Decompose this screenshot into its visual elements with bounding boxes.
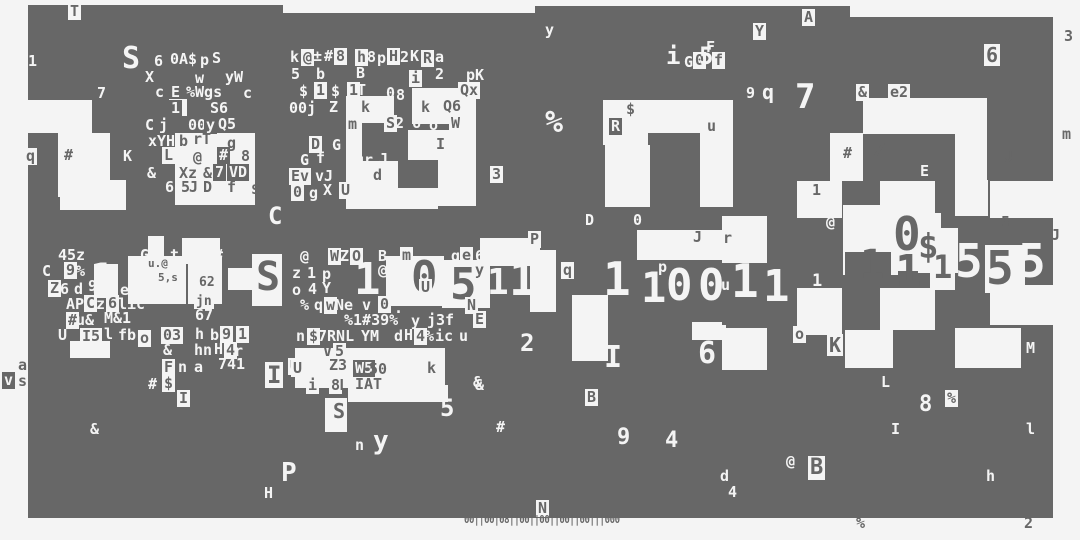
noise-glyph: q [561,262,574,279]
noise-glyph: 00j [289,101,316,116]
noise-glyph: k [290,50,299,65]
noise-glyph: 8 [379,182,388,197]
noise-glyph: c [155,85,164,100]
noise-glyph: t [231,274,242,292]
noise-glyph: t [170,248,179,263]
noise-glyph: o [429,118,438,133]
noise-glyph: C [42,264,51,279]
noise-glyph: O [350,248,363,265]
noise-glyph: a [18,358,27,373]
white-block [722,328,767,370]
noise-glyph: 4 [308,282,317,297]
noise-glyph: Y [322,281,331,296]
noise-glyph: 741 [218,357,245,372]
noise-glyph: 7 [97,86,106,101]
noise-glyph: # [843,146,852,161]
noise-glyph: P [528,231,541,248]
noise-glyph: K [827,334,843,356]
noise-glyph: U [1003,150,1012,165]
noise-glyph: d [394,329,403,344]
noise-glyph: a [435,50,444,65]
noise-glyph: Z [340,249,349,264]
noise-glyph: u& [76,313,94,328]
noise-glyph: B [356,66,365,81]
noise-glyph: $ [626,102,635,117]
noise-glyph: 6 [154,54,163,69]
noise-glyph: ... [417,291,444,306]
noise-glyph: n [178,360,187,375]
noise-glyph: m [346,116,359,133]
noise-glyph: q [24,148,37,165]
noise-glyph: u [707,119,716,134]
noise-glyph: k [425,360,438,377]
big-digit: 1 [933,251,952,283]
noise-glyph: X [818,308,827,323]
noise-glyph: 62 [199,276,215,289]
barcode-row: 00||00|08||00||00||00||00|||000 [464,514,620,525]
noise-glyph: 2 [400,50,409,65]
noise-glyph: YM [361,329,379,344]
noise-glyph: E [920,164,929,179]
white-block [605,145,650,207]
noise-glyph: m [400,247,413,264]
noise-glyph: 0 [386,86,395,101]
noise-glyph: Q6 [441,98,463,115]
noise-glyph: l [104,327,113,342]
noise-glyph: B [808,456,825,480]
noise-glyph: 5 [440,396,454,420]
noise-glyph: 9 [746,86,755,101]
noise-glyph: 2 [520,331,534,355]
noise-glyph: 7 [213,164,226,181]
noise-glyph: 9t [88,279,106,294]
noise-glyph: s [18,374,27,389]
white-block [700,145,733,207]
noise-glyph: q [762,82,774,102]
noise-glyph: J [189,180,198,195]
noise-glyph: 5,s [158,272,178,283]
noise-glyph: z [292,266,301,281]
noise-glyph: ic [435,329,453,344]
noise-glyph: L [162,147,175,164]
noise-glyph: S6 [210,101,228,116]
noise-glyph: % [545,108,563,138]
noise-glyph: 9qr [346,153,373,168]
noise-glyph: L [881,375,890,390]
big-digit: 1 [763,265,790,309]
page-background: { "scene": { "description": "glitch nois… [0,0,1080,540]
noise-glyph: @ [300,249,309,264]
noise-glyph: D [585,213,594,228]
noise-glyph: $ [162,375,175,392]
noise-glyph: A [802,9,815,26]
noise-glyph: 2 [1024,516,1033,531]
big-digit: 0 [666,264,693,308]
noise-glyph: e [460,247,473,264]
noise-glyph: e2 [888,84,910,101]
noise-glyph: ± [313,49,322,64]
noise-glyph: & [90,422,99,437]
white-block [637,230,732,260]
noise-glyph: a [194,360,203,375]
noise-glyph: J [693,230,702,245]
noise-glyph: X [323,183,332,198]
noise-glyph: X [145,70,154,85]
white-block [990,181,1053,218]
dark-block [398,160,438,188]
noise-glyph: hn [194,343,212,358]
noise-glyph: 7 [795,80,815,114]
noise-glyph: 2 [435,67,444,82]
noise-glyph: 67 [195,308,213,323]
noise-glyph: C [145,118,154,133]
noise-glyph: S [122,44,140,74]
white-block [845,330,893,368]
noise-glyph: r [721,230,734,247]
big-digit: 5 [986,245,1014,291]
noise-glyph: 8 [241,149,250,164]
noise-glyph: rT [193,132,211,147]
big-digit: 5 [1018,238,1046,284]
noise-glyph: q [451,249,460,264]
noise-glyph: % [425,329,434,344]
noise-glyph: & [163,343,172,358]
noise-glyph: 8 [396,88,405,103]
noise-glyph: b [179,134,188,149]
noise-glyph: E [473,311,486,328]
noise-glyph: Z [872,142,885,164]
noise-glyph: 8 [334,48,347,65]
noise-glyph: h [986,469,995,484]
noise-glyph: 6 [412,116,421,131]
noise-glyph: S [212,51,221,66]
noise-glyph: f [227,180,236,195]
big-digit: S [254,256,282,298]
noise-glyph: I [434,136,447,153]
noise-glyph: v [2,372,15,389]
noise-glyph: & [147,166,156,181]
noise-glyph: 5 [1001,215,1010,230]
noise-glyph: $ [331,84,340,99]
noise-glyph: U3 [184,248,202,263]
noise-glyph: # [64,148,73,163]
noise-glyph: 8 [919,394,932,416]
noise-glyph: & [475,378,484,393]
noise-glyph: @ [786,454,795,469]
noise-glyph: I [604,343,622,373]
noise-glyph: %1#39% [344,313,398,328]
noise-glyph: # [496,420,505,435]
noise-glyph: 0 [291,184,304,201]
noise-glyph: 0 [633,213,642,228]
noise-glyph: K [123,149,132,164]
noise-glyph: U [58,328,67,343]
noise-glyph: K [410,49,419,64]
noise-glyph: $ [251,182,260,197]
noise-glyph: G [684,55,693,70]
noise-glyph: % [300,298,309,313]
noise-glyph: 6 [165,180,174,195]
noise-glyph: I [265,362,283,388]
noise-glyph: 2 [395,116,404,131]
noise-glyph: T [68,3,81,20]
white-block [346,187,438,209]
noise-glyph: I [177,390,190,407]
noise-glyph: # [324,49,333,64]
noise-glyph: Qx [458,82,480,99]
noise-glyph: 0 [911,310,920,325]
noise-glyph: 1 [314,82,327,99]
noise-glyph: I5 [80,328,102,345]
noise-glyph: j3f [427,313,454,328]
noise-glyph: J [379,152,388,167]
noise-glyph: l [1026,422,1035,437]
noise-glyph: @ [193,150,202,165]
noise-glyph: m [1062,127,1071,142]
big-digit: 1 [509,256,537,302]
noise-glyph: M [1026,341,1035,356]
noise-glyph: % [856,516,865,531]
white-block [28,100,92,133]
noise-glyph: # [148,377,157,392]
noise-glyph: o [793,326,806,343]
noise-glyph: P [281,460,297,486]
noise-glyph: IAT [355,377,382,392]
noise-glyph: i [666,44,680,68]
noise-glyph: 5 [430,101,439,116]
noise-glyph: G [300,153,309,168]
noise-glyph: 0A$ [170,52,197,67]
noise-glyph: AP [66,297,84,312]
noise-glyph: yW [225,70,243,85]
white-block [955,180,988,216]
noise-glyph: d [720,469,729,484]
noise-glyph: s [419,136,428,151]
noise-glyph: %Wgs [186,85,222,100]
noise-glyph: 1 [307,266,316,281]
noise-glyph: H [264,486,273,501]
noise-glyph: 4 [728,485,737,500]
noise-glyph: n [296,329,305,344]
noise-glyph: H [387,48,400,65]
noise-glyph: c [243,86,252,101]
noise-glyph: f [316,151,325,166]
noise-glyph: p [198,52,211,69]
noise-glyph: L [339,378,348,393]
noise-glyph: 3 [490,166,503,183]
noise-glyph: 1 [810,182,823,199]
noise-glyph: B [585,389,598,406]
noise-glyph: 2 [363,184,372,199]
big-digit: 5 [955,238,983,284]
noise-glyph: Q5 [216,116,238,133]
noise-glyph: Z3 [329,358,347,373]
noise-glyph: 8 [367,50,376,65]
noise-glyph: @ [826,215,835,230]
noise-glyph: h [195,327,204,342]
noise-glyph: U [291,360,304,377]
noise-glyph: y [545,23,554,38]
noise-glyph: j [473,277,485,297]
noise-glyph: y [373,428,389,454]
noise-glyph: E [171,85,180,100]
noise-glyph: D [203,180,212,195]
noise-glyph: f [712,52,725,69]
noise-glyph: u [459,329,468,344]
noise-glyph: U [339,182,352,199]
noise-glyph: 4 [665,430,678,452]
noise-glyph: 1 [28,54,37,69]
noise-glyph: n [355,438,364,453]
noise-glyph: q [314,298,323,313]
noise-glyph: @ [378,263,387,278]
noise-glyph: R [421,50,434,67]
noise-glyph: 5 [291,67,300,82]
noise-glyph: i [409,70,422,87]
big-digit: 1 [731,258,759,304]
noise-glyph: # [217,147,230,164]
noise-glyph: 1 [812,273,822,290]
noise-glyph: 6 [984,44,1000,66]
noise-glyph: $ [299,84,308,99]
glitch-collage-canvas: 110S110511110011011$1555TyAY3m1q#7avs&%2… [0,0,1080,540]
noise-glyph: % [76,264,85,279]
noise-glyph: u.@ [148,258,168,269]
noise-glyph: R [609,118,622,135]
noise-glyph: p [377,51,386,66]
noise-glyph: 1 [169,100,182,117]
big-digit: 1 [860,245,884,285]
noise-glyph: fb [118,328,136,343]
noise-glyph: 1 [236,326,249,343]
noise-glyph: 6 [698,339,716,369]
noise-glyph: % [945,390,958,407]
noise-glyph: Z [329,100,338,115]
noise-glyph: G [332,138,341,153]
noise-glyph: b [316,67,325,82]
noise-glyph: H [404,328,413,343]
big-digit: 1 [603,256,631,302]
noise-glyph: g [309,186,318,201]
noise-glyph: S [331,400,347,422]
noise-glyph: & [856,84,869,101]
white-block [60,180,126,210]
noise-glyph: o [138,330,151,347]
noise-glyph: # [214,248,223,263]
big-digit: 1 [487,265,509,301]
noise-glyph: i [306,377,319,394]
noise-glyph: 3 [1064,29,1073,44]
noise-glyph: 7 [460,116,469,131]
noise-glyph: C [370,101,379,116]
noise-glyph: 9 [617,427,630,449]
white-block [955,328,1021,368]
dark-block [648,133,700,145]
noise-glyph: I [891,422,900,437]
noise-glyph: u [721,278,730,293]
noise-glyph: J [1051,228,1060,243]
white-block [955,133,987,181]
noise-glyph: Y [753,23,766,40]
noise-glyph: p [658,260,667,275]
noise-glyph: M&1 [104,311,131,326]
noise-glyph: C [268,204,282,228]
white-block [863,98,987,134]
noise-glyph: T [357,83,366,98]
